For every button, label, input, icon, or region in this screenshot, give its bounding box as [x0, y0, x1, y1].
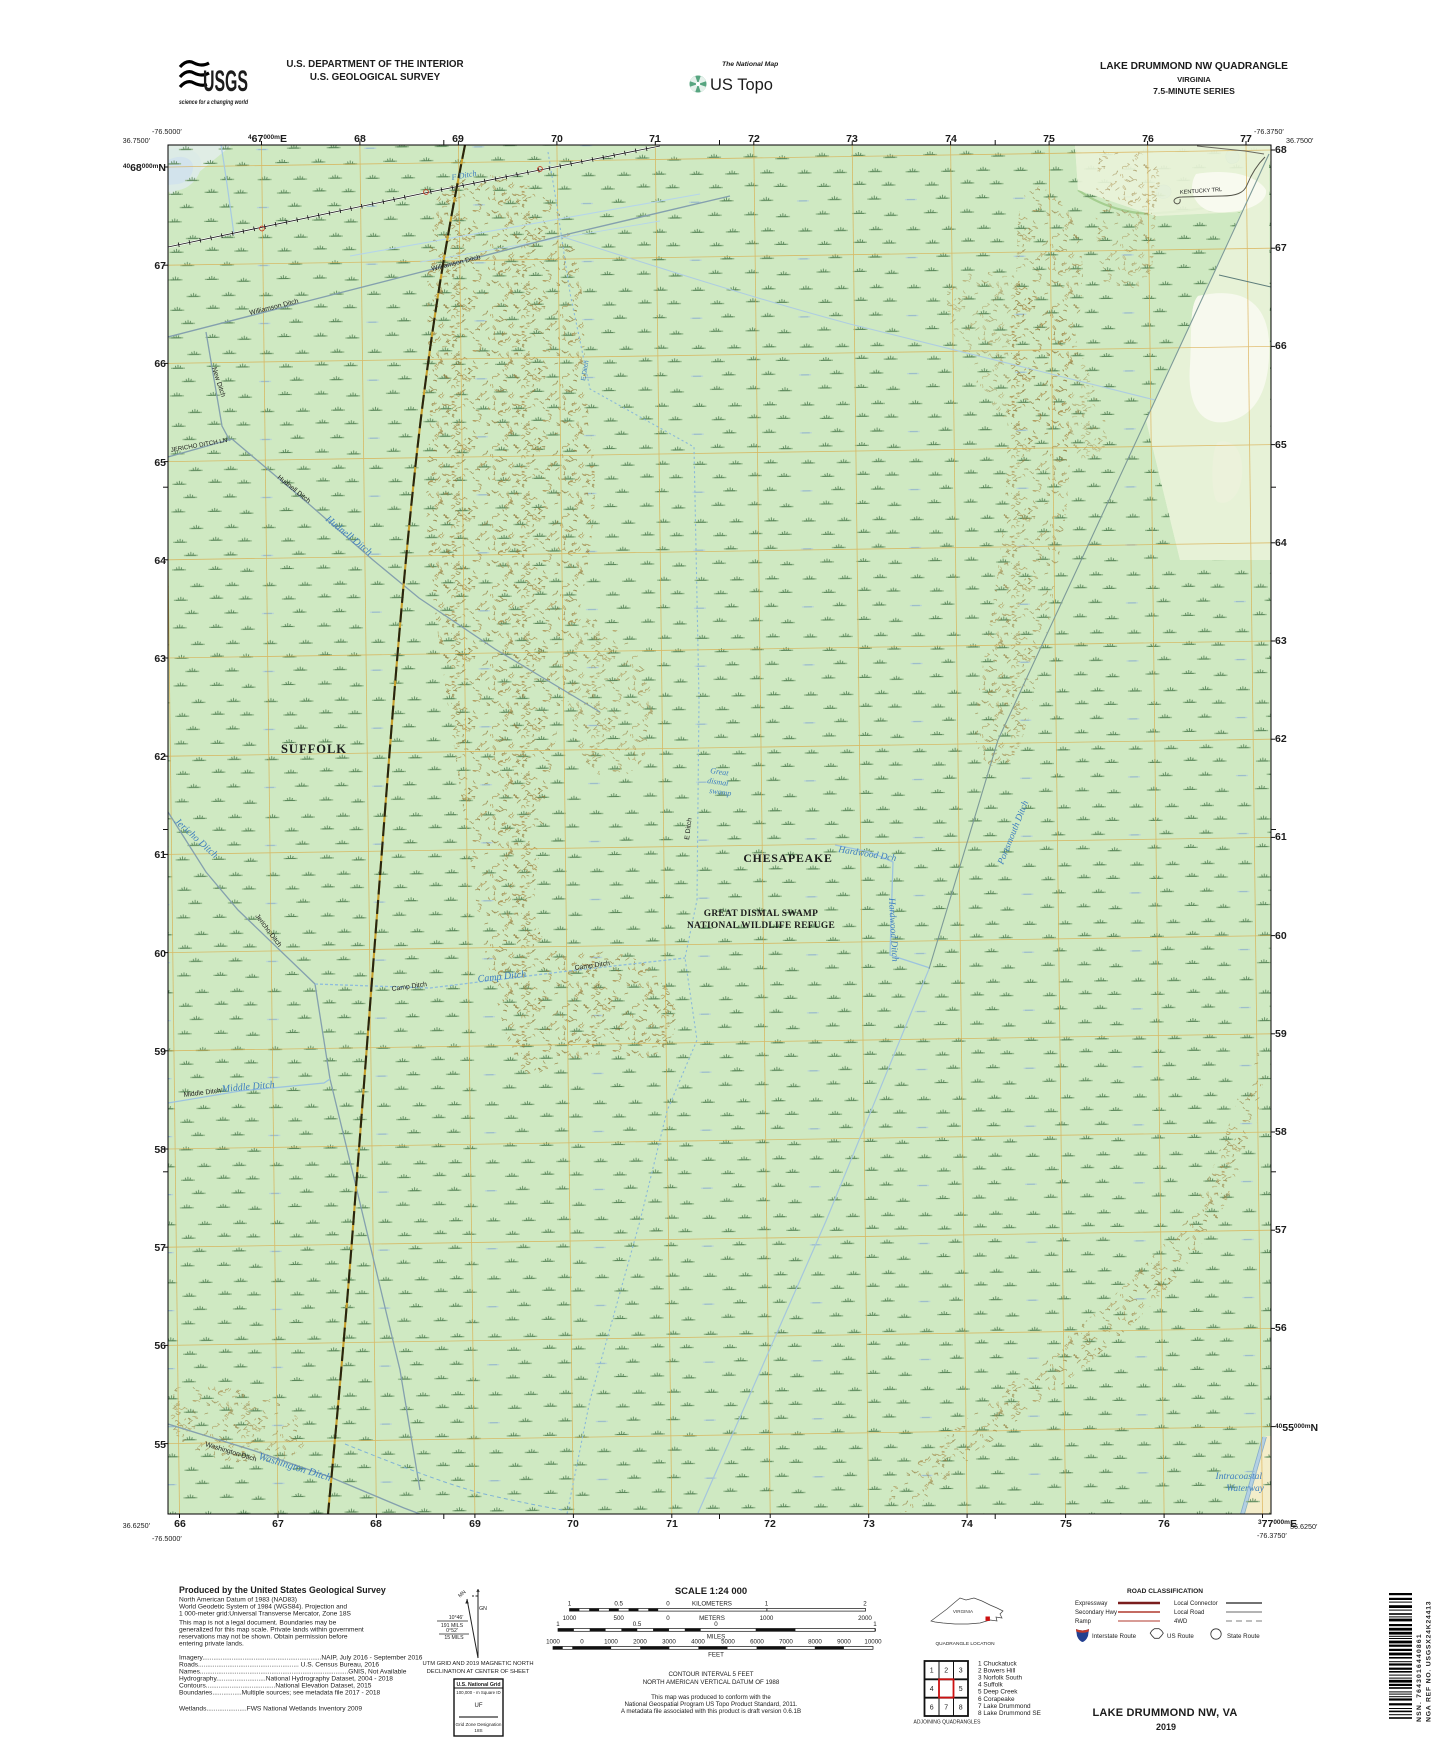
svg-text:Waterway: Waterway: [1226, 1484, 1264, 1494]
svg-text:Hydrography...................: Hydrography...........................Na…: [179, 1676, 393, 1683]
svg-text:Interstate Route: Interstate Route: [1092, 1633, 1137, 1640]
svg-text:10000: 10000: [864, 1639, 882, 1646]
svg-text:1000: 1000: [546, 1639, 560, 1646]
svg-text:NORTH AMERICAN VERTICAL DATUM: NORTH AMERICAN VERTICAL DATUM OF 1988: [643, 1679, 780, 1686]
svg-text:6 Corapeake: 6 Corapeake: [978, 1696, 1015, 1703]
svg-text:Local Road: Local Road: [1174, 1610, 1204, 1616]
svg-text:500: 500: [614, 1615, 625, 1622]
svg-text:0.5: 0.5: [633, 1621, 642, 1628]
svg-text:LAKE DRUMMOND NW QUADRANGLE: LAKE DRUMMOND NW QUADRANGLE: [1100, 61, 1288, 72]
svg-text:CHESAPEAKE: CHESAPEAKE: [743, 851, 832, 865]
svg-text:1 Chuckatuck: 1 Chuckatuck: [978, 1661, 1018, 1668]
svg-text:9000: 9000: [837, 1639, 851, 1646]
svg-text:2: 2: [863, 1601, 867, 1608]
svg-text:69: 69: [469, 1518, 481, 1530]
svg-text:0°52′: 0°52′: [446, 1628, 458, 1634]
svg-text:56: 56: [154, 1340, 166, 1352]
svg-text:61: 61: [1275, 831, 1287, 843]
svg-text:This map is not a legal docume: This map is not a legal document. Bounda…: [179, 1620, 337, 1627]
svg-text:63: 63: [154, 653, 166, 665]
svg-text:State Route: State Route: [1227, 1633, 1260, 1640]
svg-text:56: 56: [1275, 1322, 1287, 1334]
svg-text:-76.3750′: -76.3750′: [1257, 1531, 1287, 1540]
svg-text:65: 65: [1275, 439, 1287, 451]
svg-text:7.5-MINUTE SERIES: 7.5-MINUTE SERIES: [1153, 86, 1235, 96]
svg-text:64: 64: [154, 555, 166, 567]
svg-text:68: 68: [370, 1518, 382, 1530]
svg-text:1000: 1000: [760, 1615, 774, 1622]
svg-text:58: 58: [154, 1144, 166, 1156]
svg-text:4: 4: [930, 1686, 934, 1693]
svg-text:60: 60: [154, 948, 166, 960]
svg-text:The National Map: The National Map: [722, 61, 778, 68]
svg-text:Grid Zone Designation: Grid Zone Designation: [456, 1722, 502, 1727]
svg-text:2000: 2000: [858, 1615, 872, 1622]
svg-text:-76.3750′: -76.3750′: [1254, 127, 1284, 136]
svg-text:SUFFOLK: SUFFOLK: [281, 742, 347, 756]
svg-text:1: 1: [873, 1621, 877, 1628]
svg-text:KILOMETERS: KILOMETERS: [692, 1601, 732, 1608]
svg-text:74: 74: [961, 1518, 973, 1530]
svg-text:7: 7: [944, 1704, 948, 1711]
svg-text:USGS: USGS: [203, 65, 248, 98]
svg-text:36.6250′: 36.6250′: [1290, 1522, 1318, 1531]
svg-text:Names.........................: Names...................................…: [179, 1669, 407, 1676]
svg-text:U.S. National Grid: U.S. National Grid: [456, 1682, 500, 1688]
svg-text:7000: 7000: [779, 1639, 793, 1646]
svg-text:Wetlands......................: Wetlands......................FWS Nation…: [179, 1706, 362, 1713]
svg-text:75: 75: [1060, 1518, 1072, 1530]
svg-text:A metadata file associated wit: A metadata file associated with this pro…: [621, 1708, 801, 1715]
svg-text:4WD: 4WD: [1174, 1619, 1188, 1625]
svg-text:100,000 - m Square ID: 100,000 - m Square ID: [456, 1690, 500, 1695]
svg-text:8: 8: [959, 1704, 963, 1711]
svg-text:1000: 1000: [563, 1615, 577, 1622]
svg-text:64: 64: [1275, 537, 1287, 549]
svg-text:Roads.........................: Roads...................................…: [179, 1662, 379, 1669]
svg-text:SCALE 1:24 000: SCALE 1:24 000: [675, 1586, 747, 1597]
svg-text:57: 57: [154, 1242, 166, 1254]
svg-text:National Geospatial Program US: National Geospatial Program US Topo Prod…: [624, 1701, 797, 1708]
svg-text:Local Connector: Local Connector: [1174, 1601, 1218, 1607]
svg-text:This map was produced to confo: This map was produced to conform with th…: [651, 1694, 771, 1701]
svg-text:67: 67: [1275, 242, 1287, 254]
svg-text:71: 71: [666, 1518, 678, 1530]
svg-text:66: 66: [174, 1518, 186, 1530]
svg-text:Imagery.......................: Imagery.................................…: [179, 1655, 423, 1662]
svg-text:2: 2: [944, 1668, 948, 1675]
svg-text:60: 60: [1275, 930, 1287, 942]
svg-text:US Route: US Route: [1167, 1633, 1194, 1640]
svg-text:66: 66: [154, 358, 166, 370]
svg-text:3 Norfolk South: 3 Norfolk South: [978, 1675, 1022, 1682]
svg-text:Produced by the United States: Produced by the United States Geological…: [179, 1585, 386, 1595]
svg-text:Boundaries................Mult: Boundaries................Multiple sourc…: [179, 1690, 381, 1697]
svg-text:72: 72: [764, 1518, 776, 1530]
svg-text:U.S. GEOLOGICAL SURVEY: U.S. GEOLOGICAL SURVEY: [310, 72, 441, 83]
svg-text:1: 1: [930, 1668, 934, 1675]
svg-text:3: 3: [959, 1668, 963, 1675]
svg-text:62: 62: [1275, 733, 1287, 745]
svg-text:US Topo: US Topo: [710, 76, 773, 94]
svg-text:-76.5000′: -76.5000′: [152, 1534, 182, 1543]
svg-text:VIRGINIA: VIRGINIA: [953, 1609, 974, 1614]
svg-text:0: 0: [714, 1621, 718, 1628]
svg-text:58: 58: [1275, 1126, 1287, 1138]
svg-text:NATIONAL WILDLIFE REFUGE: NATIONAL WILDLIFE REFUGE: [687, 921, 835, 931]
svg-text:UF: UF: [475, 1703, 483, 1709]
svg-text:generalized for this map scale: generalized for this map scale. Private …: [179, 1627, 364, 1634]
svg-text:1: 1: [765, 1601, 769, 1608]
svg-text:0: 0: [666, 1601, 670, 1608]
svg-text:1 000-meter grid:Universal Tra: 1 000-meter grid:Universal Transverse Me…: [179, 1611, 351, 1618]
svg-text:Secondary Hwy: Secondary Hwy: [1075, 1610, 1117, 1616]
svg-text:18S: 18S: [474, 1728, 482, 1733]
svg-text:10°46′: 10°46′: [449, 1615, 464, 1621]
svg-text:67: 67: [272, 1518, 284, 1530]
svg-text:1: 1: [568, 1601, 572, 1608]
svg-text:7 Lake Drummond: 7 Lake Drummond: [978, 1703, 1031, 1710]
svg-text:76: 76: [1158, 1518, 1170, 1530]
svg-text:GREAT DISMAL SWAMP: GREAT DISMAL SWAMP: [704, 909, 818, 919]
svg-text:Expressway: Expressway: [1075, 1601, 1107, 1607]
svg-text:62: 62: [154, 751, 166, 763]
svg-text:Contours......................: Contours................................…: [179, 1683, 372, 1690]
svg-text:36.7500′: 36.7500′: [123, 136, 151, 145]
svg-text:1: 1: [556, 1621, 560, 1628]
svg-text:8000: 8000: [808, 1639, 822, 1646]
svg-text:QUADRANGLE LOCATION: QUADRANGLE LOCATION: [935, 1641, 995, 1647]
svg-text:65: 65: [154, 457, 166, 469]
svg-text:3000: 3000: [662, 1639, 676, 1646]
svg-text:reservations may not be shown.: reservations may not be shown. Obtain pe…: [179, 1634, 348, 1641]
svg-text:59: 59: [154, 1046, 166, 1058]
svg-text:36.6250′: 36.6250′: [123, 1521, 151, 1530]
svg-text:METERS: METERS: [699, 1615, 725, 1622]
svg-text:ADJOINING QUADRANGLES: ADJOINING QUADRANGLES: [914, 1720, 982, 1726]
svg-text:4000: 4000: [691, 1639, 705, 1646]
svg-text:59: 59: [1275, 1028, 1287, 1040]
svg-text:NGA REF NO. USGSX24K24413: NGA REF NO. USGSX24K24413: [1426, 1601, 1433, 1722]
svg-text:World Geodetic System of 1984: World Geodetic System of 1984 (WGS84). P…: [179, 1604, 347, 1611]
svg-text:VIRGINIA: VIRGINIA: [1177, 75, 1211, 84]
svg-text:Ramp: Ramp: [1075, 1619, 1092, 1625]
svg-text:5: 5: [959, 1686, 963, 1693]
svg-text:LAKE DRUMMOND NW, VA: LAKE DRUMMOND NW, VA: [1093, 1707, 1238, 1719]
svg-text:0.5: 0.5: [614, 1601, 623, 1608]
svg-text:73: 73: [863, 1518, 875, 1530]
svg-text:6000: 6000: [750, 1639, 764, 1646]
svg-text:U.S. DEPARTMENT OF THE INTERIO: U.S. DEPARTMENT OF THE INTERIOR: [286, 59, 463, 70]
svg-text:36.7500′: 36.7500′: [1286, 136, 1314, 145]
svg-text:8 Lake Drummond SE: 8 Lake Drummond SE: [978, 1710, 1041, 1717]
svg-text:61: 61: [154, 849, 166, 861]
svg-text:6: 6: [930, 1704, 934, 1711]
svg-text:0: 0: [580, 1639, 584, 1646]
svg-text:DECLINATION AT CENTER OF SHEET: DECLINATION AT CENTER OF SHEET: [427, 1669, 530, 1675]
svg-text:ROAD CLASSIFICATION: ROAD CLASSIFICATION: [1127, 1588, 1203, 1595]
svg-text:2000: 2000: [633, 1639, 647, 1646]
svg-text:2019: 2019: [1156, 1722, 1176, 1732]
svg-text:5 Deep Creek: 5 Deep Creek: [978, 1689, 1018, 1696]
svg-text:70: 70: [567, 1518, 579, 1530]
svg-text:0: 0: [666, 1615, 670, 1622]
svg-text:North American Datum of 1983 (: North American Datum of 1983 (NAD83): [179, 1597, 297, 1604]
svg-text:1000: 1000: [604, 1639, 618, 1646]
svg-text:15 MILS: 15 MILS: [444, 1635, 464, 1641]
svg-text:entering private lands.: entering private lands.: [179, 1641, 244, 1648]
svg-text:FEET: FEET: [708, 1652, 724, 1659]
svg-text:science for a changing world: science for a changing world: [179, 99, 249, 106]
svg-text:63: 63: [1275, 635, 1287, 647]
svg-text:Intracoastal: Intracoastal: [1215, 1472, 1263, 1482]
svg-text:-76.5000′: -76.5000′: [152, 127, 182, 136]
svg-text:4 Suffolk: 4 Suffolk: [978, 1682, 1004, 1689]
svg-text:66: 66: [1275, 340, 1287, 352]
svg-text:55: 55: [154, 1439, 166, 1451]
svg-text:5000: 5000: [721, 1639, 735, 1646]
svg-text:57: 57: [1275, 1224, 1287, 1236]
svg-text:67: 67: [154, 260, 166, 272]
svg-text:GN: GN: [479, 1606, 487, 1612]
svg-text:UTM GRID AND 2019 MAGNETIC NOR: UTM GRID AND 2019 MAGNETIC NORTH: [422, 1661, 533, 1667]
svg-text:68: 68: [1275, 144, 1287, 156]
svg-text:2 Bowers Hill: 2 Bowers Hill: [978, 1668, 1015, 1675]
svg-text:NSN. 7643016440861: NSN. 7643016440861: [1416, 1633, 1423, 1722]
svg-text:CONTOUR INTERVAL 5 FEET: CONTOUR INTERVAL 5 FEET: [668, 1671, 753, 1678]
